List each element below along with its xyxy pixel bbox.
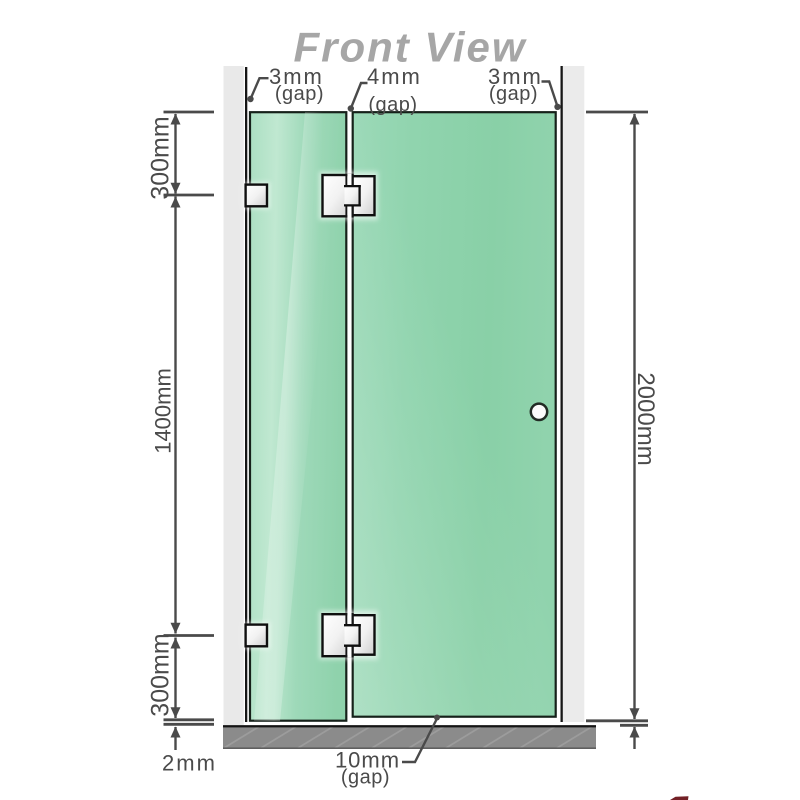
svg-text:300mm: 300mm xyxy=(146,633,174,716)
svg-text:(gap): (gap) xyxy=(341,767,390,789)
svg-text:(gap): (gap) xyxy=(368,94,417,116)
svg-text:300mm: 300mm xyxy=(146,116,174,199)
svg-text:(gap): (gap) xyxy=(489,83,538,105)
svg-text:2mm: 2mm xyxy=(162,751,217,776)
svg-text:(gap): (gap) xyxy=(275,83,324,105)
svg-text:2000mm: 2000mm xyxy=(632,372,659,465)
svg-text:4mm: 4mm xyxy=(367,64,422,89)
svg-text:1400mm: 1400mm xyxy=(151,368,176,454)
